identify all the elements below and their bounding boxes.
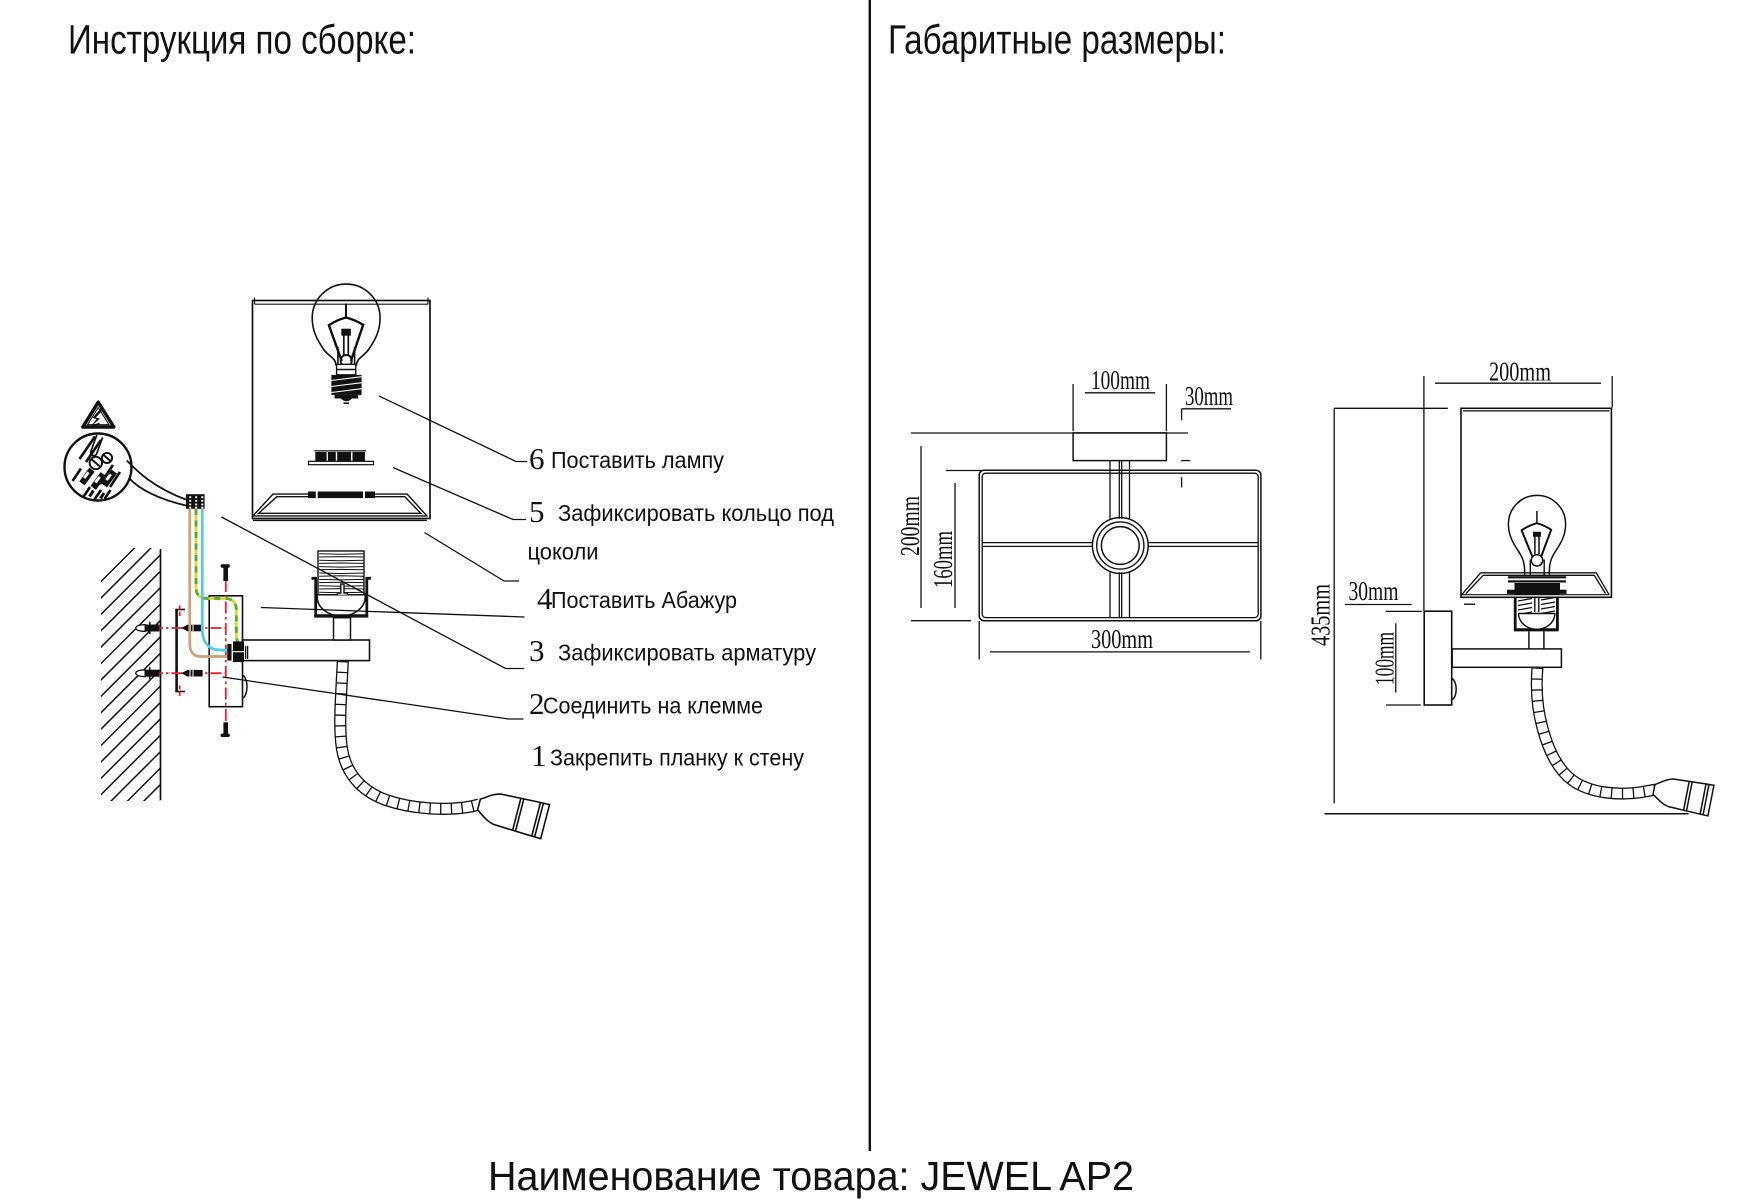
svg-text:цоколи: цоколи [528,539,599,565]
svg-text:Соединить на клемме: Соединить на клемме [543,693,763,719]
svg-text:435mm: 435mm [1306,584,1336,646]
svg-text:3: 3 [529,633,545,668]
svg-text:Наименование товара: JEWEL AP2: Наименование товара: JEWEL AP2 [488,1153,1134,1199]
svg-text:160mm: 160mm [928,531,958,588]
svg-text:Поставить лампу: Поставить лампу [551,447,724,473]
svg-text:200mm: 200mm [895,496,925,556]
svg-text:Габаритные размеры:: Габаритные размеры: [888,17,1226,63]
svg-text:5: 5 [529,494,545,529]
svg-text:Закрепить планку к стену: Закрепить планку к стену [550,745,804,771]
svg-text:Поставить Абажур: Поставить Абажур [551,587,737,613]
svg-text:100mm: 100mm [1091,365,1150,395]
svg-text:200mm: 200mm [1489,357,1551,387]
svg-text:Инструкция по сборке:: Инструкция по сборке: [68,17,416,63]
svg-text:300mm: 300mm [1091,624,1153,654]
svg-text:Зафиксировать кольцо под: Зафиксировать кольцо под [558,500,834,526]
svg-text:100mm: 100mm [1370,632,1400,685]
svg-text:6: 6 [529,441,545,476]
svg-text:30mm: 30mm [1349,576,1399,606]
svg-text:30mm: 30mm [1185,381,1233,411]
svg-text:1: 1 [531,738,547,773]
svg-text:Зафиксировать арматуру: Зафиксировать арматуру [558,640,816,666]
